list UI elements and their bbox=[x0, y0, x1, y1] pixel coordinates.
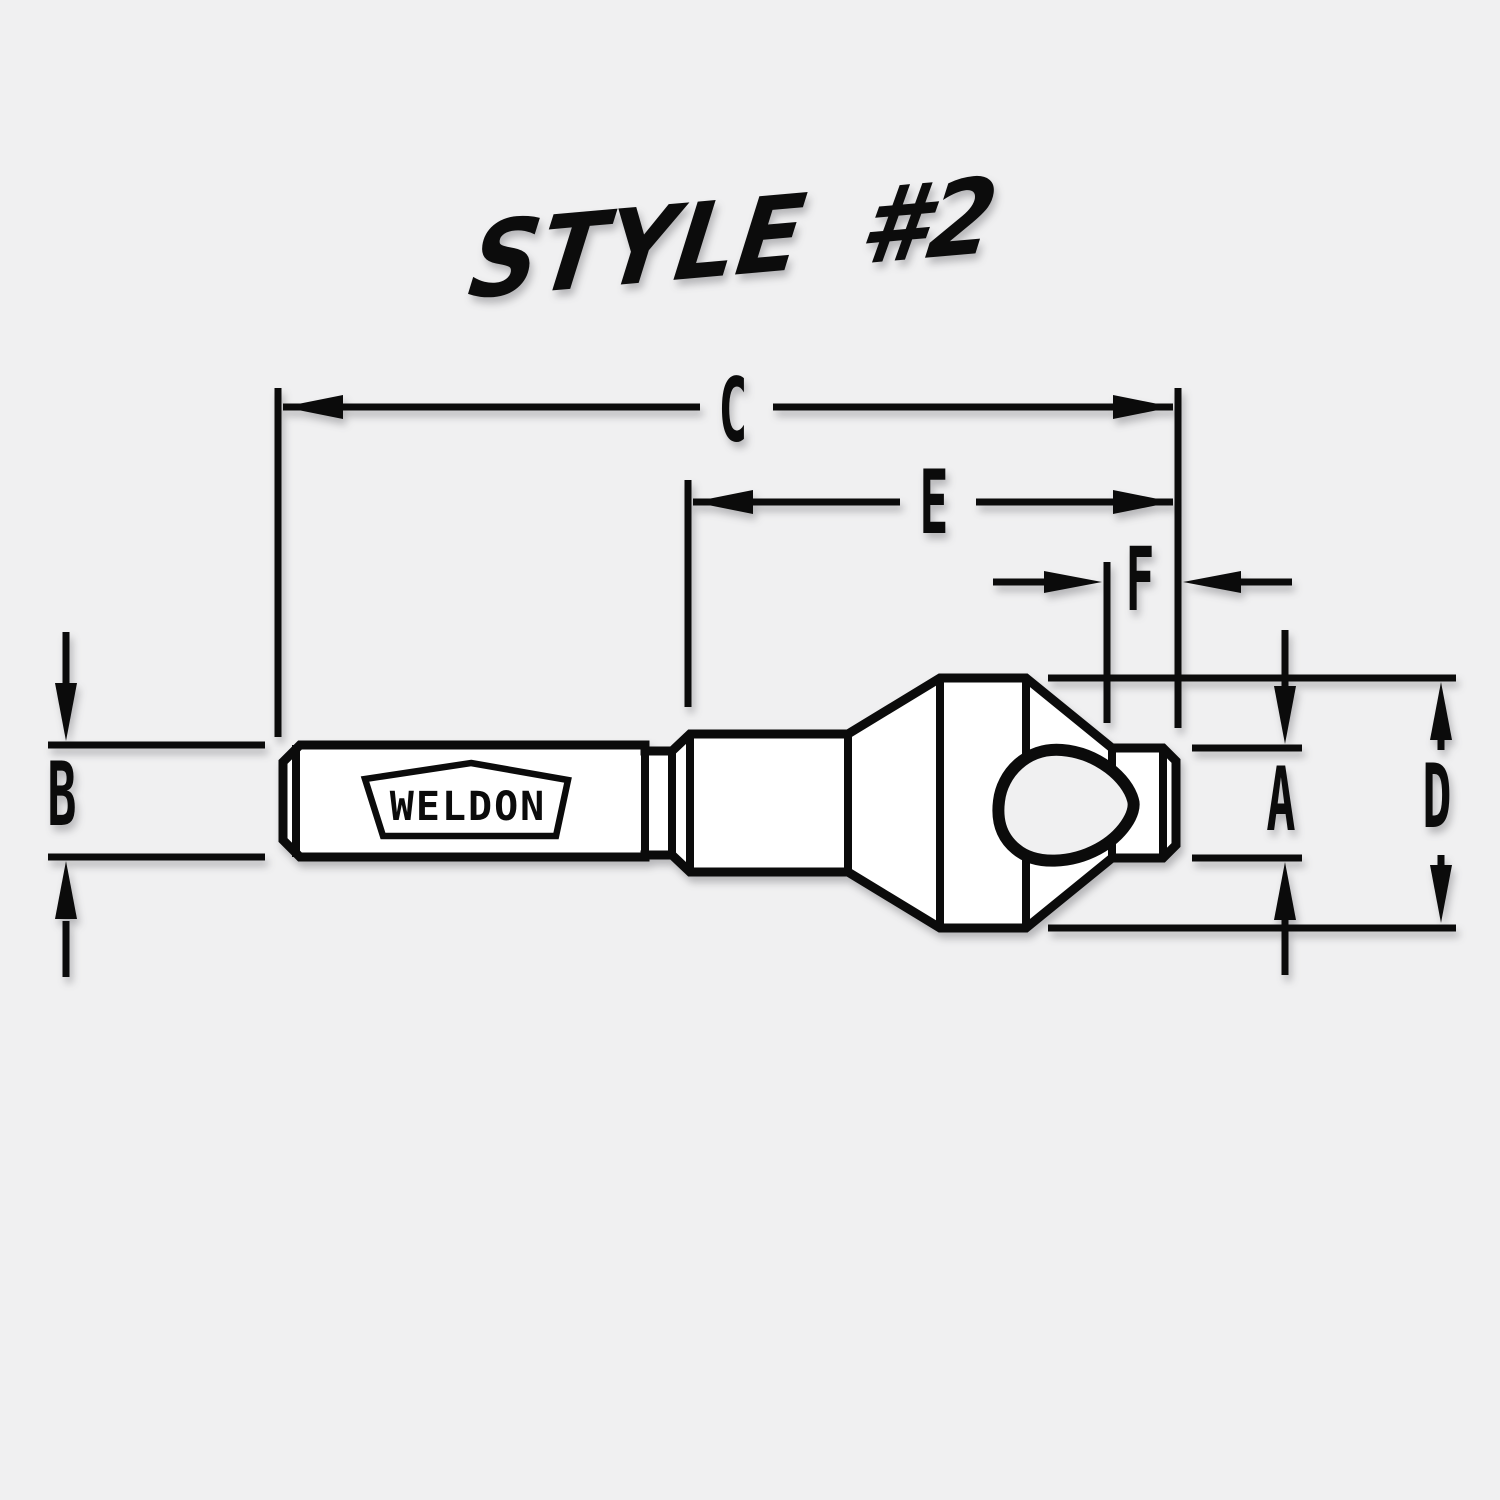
arrowhead-a-bottom bbox=[1274, 862, 1296, 920]
brand-label: WELDON bbox=[390, 784, 547, 830]
dim-label-b: B bbox=[47, 743, 76, 846]
arrowhead-f-left bbox=[1044, 571, 1102, 593]
dimension-a: A bbox=[1192, 630, 1302, 975]
page-title: STYLE #2 bbox=[462, 154, 1005, 323]
countersink-hole bbox=[998, 750, 1133, 861]
dim-label-a: A bbox=[1266, 748, 1295, 851]
arrowhead-c-left bbox=[283, 395, 343, 419]
arrowhead-a-top bbox=[1274, 686, 1296, 744]
arrowhead-e-left bbox=[693, 490, 753, 514]
arrowhead-b-top bbox=[55, 683, 77, 741]
dim-label-d: D bbox=[1422, 745, 1451, 848]
arrowhead-d-bottom bbox=[1430, 865, 1452, 923]
dimension-c: C bbox=[278, 359, 1178, 737]
arrowhead-e-right bbox=[1113, 490, 1173, 514]
technical-drawing: STYLE #2 C E F bbox=[0, 0, 1500, 1500]
dim-label-f: F bbox=[1125, 528, 1154, 631]
arrowhead-b-bottom bbox=[55, 861, 77, 919]
arrowhead-f-right bbox=[1183, 571, 1241, 593]
diagram-canvas: STYLE #2 C E F bbox=[0, 0, 1500, 1500]
dim-label-e: E bbox=[919, 451, 948, 554]
dimension-e: E bbox=[688, 451, 1173, 707]
dimension-b: B bbox=[47, 632, 265, 977]
dim-label-c: C bbox=[718, 359, 747, 462]
countersink-tool: WELDON bbox=[283, 678, 1176, 928]
arrowhead-d-top bbox=[1430, 682, 1452, 740]
arrowhead-c-right bbox=[1113, 395, 1173, 419]
